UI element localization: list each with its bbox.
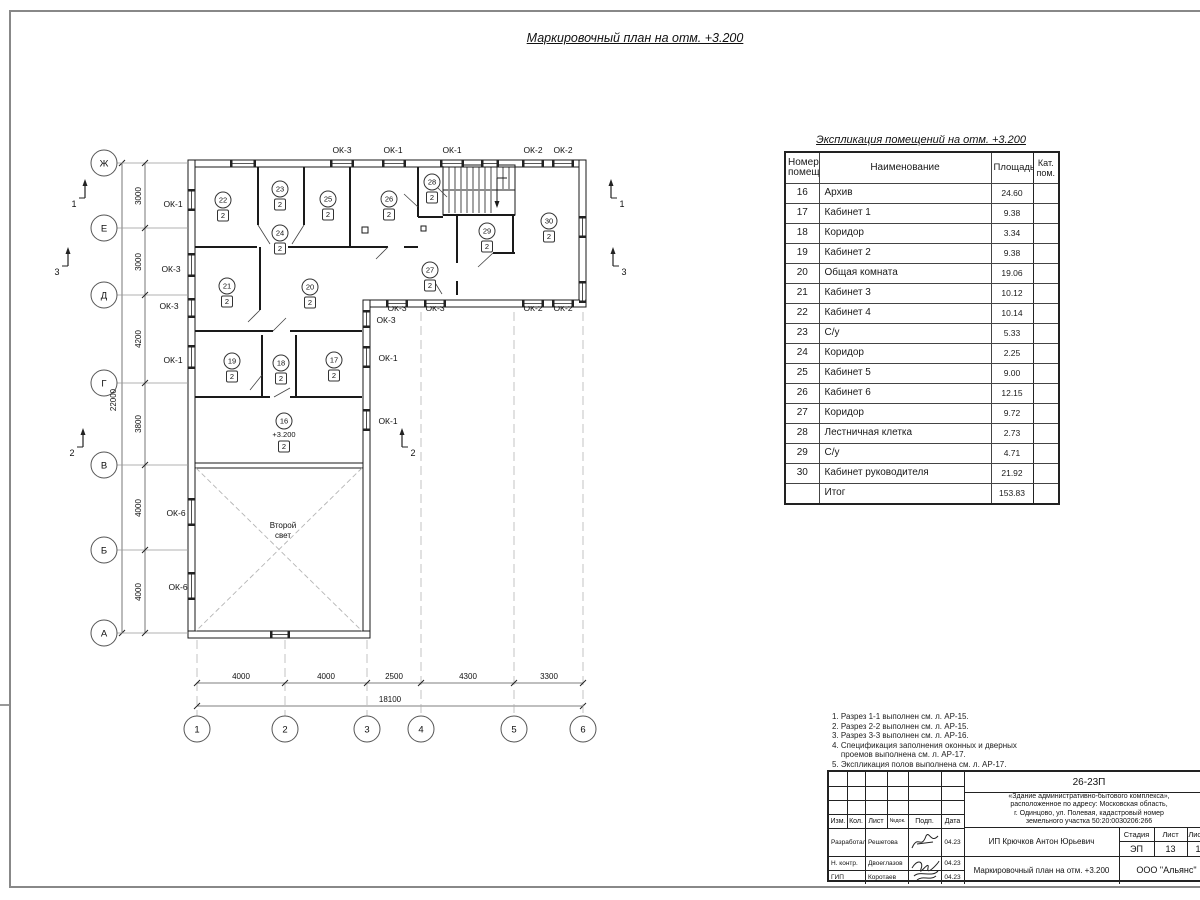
table-cell: 21 (785, 284, 819, 304)
stamp-sheet-title: Маркировочный план на отм. +3.200 (964, 856, 1119, 884)
table-cell (1033, 264, 1059, 284)
stamp-col-izm: Изм. (829, 814, 847, 828)
section-arrowhead (66, 247, 71, 254)
note-line: 5. Экспликация полов выполнена см. л. АР… (832, 760, 1017, 770)
stamp-name-developer: Решетова (866, 828, 910, 856)
room-category: 2 (278, 244, 282, 253)
table-cell: 9.72 (991, 404, 1033, 424)
note-line: 2. Разрез 2-2 выполнен см. л. АР-15. (832, 722, 1017, 732)
table-row: 17Кабинет 19.38 (785, 204, 1059, 224)
dimension-total-label: 18100 (379, 695, 402, 704)
room-number: 17 (330, 356, 338, 365)
section-arrowhead (609, 179, 614, 186)
table-row: 16Архив24.60 (785, 184, 1059, 204)
room-number: 18 (277, 359, 285, 368)
note-line: 1. Разрез 1-1 выполнен см. л. АР-15. (832, 712, 1017, 722)
grid-row-label: Б (101, 546, 107, 557)
table-cell: Кабинет руководителя (819, 464, 991, 484)
dimension-label: 3300 (540, 672, 558, 681)
window-label: ОК-6 (166, 508, 185, 518)
stamp-col-ndok: №док. (887, 814, 908, 828)
window-label: ОК-2 (523, 145, 542, 155)
table-row: 23С/у5.33 (785, 324, 1059, 344)
section-arrowhead (400, 428, 405, 435)
table-cell: 16 (785, 184, 819, 204)
beam-lines (195, 463, 363, 468)
sheet-frame-top (9, 10, 1200, 12)
table-cell: 23 (785, 324, 819, 344)
dimension-label: 4300 (459, 672, 477, 681)
table-cell: 9.38 (991, 244, 1033, 264)
grid-row-label: А (101, 629, 108, 640)
grid-row-label: Е (101, 224, 107, 235)
table-cell: 24.60 (991, 184, 1033, 204)
grid-row-label: Ж (100, 159, 109, 170)
table-row: 27Коридор9.72 (785, 404, 1059, 424)
col-header-cat: Кат. пом. (1033, 152, 1059, 184)
table-cell: 2.73 (991, 424, 1033, 444)
table-cell: 28 (785, 424, 819, 444)
window-label: ОК-1 (378, 416, 397, 426)
second-light-diagonals (196, 468, 362, 631)
room-category: 2 (279, 374, 283, 383)
sheet-frame-bottom (9, 886, 1200, 888)
room-number: 23 (276, 185, 284, 194)
section-number: 1 (71, 199, 76, 209)
table-cell: Лестничная клетка (819, 424, 991, 444)
section-arrowhead (83, 179, 88, 186)
note-line: 4. Спецификация заполнения оконных и две… (832, 741, 1017, 751)
second-light-label: Второй (270, 521, 296, 530)
room-category: 2 (230, 372, 234, 381)
room-category: 2 (225, 297, 229, 306)
table-row: Итог153.83 (785, 484, 1059, 505)
table-cell: 2.25 (991, 344, 1033, 364)
stamp-role-ncontrol: Н. контр. (829, 856, 867, 870)
dimension-label: 4200 (134, 330, 143, 348)
table-cell: 27 (785, 404, 819, 424)
table-cell: Кабинет 1 (819, 204, 991, 224)
stamp-col-data: Дата (941, 814, 964, 828)
window-label: ОК-3 (161, 264, 180, 274)
table-cell: 12.15 (991, 384, 1033, 404)
stamp-sheets-label: Листов (1187, 827, 1200, 841)
room-category: 2 (430, 193, 434, 202)
grid-row-label: Д (101, 291, 108, 302)
dimension-label: 4000 (232, 672, 250, 681)
room-number: 26 (385, 195, 393, 204)
window-label: ОК-1 (383, 145, 402, 155)
grid-row-label: Г (101, 379, 106, 390)
table-row: 18Коридор3.34 (785, 224, 1059, 244)
table-cell: Коридор (819, 224, 991, 244)
note-line: 3. Разрез 3-3 выполнен см. л. АР-16. (832, 731, 1017, 741)
table-cell: Общая комната (819, 264, 991, 284)
window-label: ОК-1 (442, 145, 461, 155)
table-cell: 5.33 (991, 324, 1033, 344)
room-number: 29 (483, 227, 491, 236)
room-category: 2 (332, 371, 336, 380)
table-cell: 19.06 (991, 264, 1033, 284)
floor-plan: ЖЕДГВБА123456300030004200380040004000220… (40, 130, 640, 750)
table-cell (1033, 384, 1059, 404)
table-cell: Кабинет 4 (819, 304, 991, 324)
dimension-total-label: 22000 (109, 388, 118, 411)
table-row: 22Кабинет 410.14 (785, 304, 1059, 324)
dimension-label: 4000 (134, 499, 143, 517)
window-label: ОК-1 (163, 199, 182, 209)
title-block: Изм. Кол. Лист №док. Подп. Дата Разработ… (827, 770, 1200, 882)
table-cell: Коридор (819, 344, 991, 364)
explication-title: Экспликация помещений на отм. +3.200 (784, 134, 1058, 146)
table-cell (1033, 204, 1059, 224)
section-number: 2 (69, 448, 74, 458)
section-number: 2 (410, 448, 415, 458)
explication-table: Экспликация помещений на отм. +3.200 Ном… (784, 134, 1058, 505)
table-cell (785, 484, 819, 505)
drawing-sheet: { "page": { "title": "Маркировочный план… (0, 0, 1200, 900)
table-cell: 30 (785, 464, 819, 484)
dimension-label: 2500 (385, 672, 403, 681)
room-number: 27 (426, 266, 434, 275)
table-row: 20Общая комната19.06 (785, 264, 1059, 284)
object-line: г. Одинцово, ул. Полевая, кадастровый но… (1014, 810, 1164, 818)
table-cell (1033, 304, 1059, 324)
room-number: 21 (223, 282, 231, 291)
stamp-date-developer: 04.23 (941, 828, 964, 856)
table-cell: 10.12 (991, 284, 1033, 304)
table-cell: 29 (785, 444, 819, 464)
table-cell: 10.14 (991, 304, 1033, 324)
object-line: земельного участка 50:20:0030206:266 (1026, 818, 1152, 826)
section-arrowhead (81, 428, 86, 435)
section-number: 3 (54, 267, 59, 277)
room-category: 2 (278, 200, 282, 209)
room-category: 2 (387, 210, 391, 219)
shaft-squares (362, 226, 426, 233)
stamp-col-podp: Подп. (908, 814, 941, 828)
signature-gip (908, 856, 942, 883)
table-row: 25Кабинет 59.00 (785, 364, 1059, 384)
room-level: +3.200 (272, 430, 295, 439)
col-header-area: Площадь (991, 152, 1033, 184)
stamp-name-ncontrol: Двоеглазов (866, 856, 910, 870)
table-row: 24Коридор2.25 (785, 344, 1059, 364)
dimension-label: 4000 (134, 583, 143, 601)
room-number: 16 (280, 417, 288, 426)
room-number: 20 (306, 283, 314, 292)
window-label: ОК-3 (376, 315, 395, 325)
table-cell (1033, 284, 1059, 304)
dimension-label: 4000 (317, 672, 335, 681)
room-number: 25 (324, 195, 332, 204)
notes-list: 1. Разрез 1-1 выполнен см. л. АР-15.2. Р… (832, 712, 1017, 770)
section-number: 1 (619, 199, 624, 209)
object-line: расположенное по адресу: Московская обла… (1010, 801, 1167, 809)
stamp-name-gip: Коротаев (866, 870, 910, 884)
note-line: проемов выполнена см. л. АР-17. (832, 750, 1017, 760)
window-label: ОК-6 (168, 582, 187, 592)
table-cell: 19 (785, 244, 819, 264)
table-cell (1033, 484, 1059, 505)
dimension-label: 3800 (134, 415, 143, 433)
grid-col-label: 2 (282, 725, 287, 736)
window-label: ОК-3 (332, 145, 351, 155)
table-cell: Кабинет 6 (819, 384, 991, 404)
table-cell: Кабинет 3 (819, 284, 991, 304)
grid-col-label: 3 (364, 725, 369, 736)
table-cell (1033, 444, 1059, 464)
stamp-object-description: «Здание административно-бытового комплек… (969, 793, 1200, 826)
table-row: 30Кабинет руководителя21.92 (785, 464, 1059, 484)
grid-col-label: 1 (194, 725, 199, 736)
grid-col-label: 6 (580, 725, 585, 736)
grid-row-label: В (101, 461, 107, 472)
window-label: ОК-3 (159, 301, 178, 311)
table-cell: 4.71 (991, 444, 1033, 464)
stamp-col-kol: Кол. (847, 814, 865, 828)
table-cell: Кабинет 5 (819, 364, 991, 384)
signature-developer (909, 830, 941, 854)
room-category: 2 (428, 281, 432, 290)
table-row: 29С/у4.71 (785, 444, 1059, 464)
table-cell: 18 (785, 224, 819, 244)
table-row: 19Кабинет 29.38 (785, 244, 1059, 264)
col-header-name: Наименование (819, 152, 991, 184)
table-cell (1033, 464, 1059, 484)
table-cell (1033, 364, 1059, 384)
room-category: 2 (282, 442, 286, 451)
stamp-role-gip: ГИП (829, 870, 867, 884)
table-cell: 3.34 (991, 224, 1033, 244)
grid-col-label: 4 (418, 725, 423, 736)
table-cell: 20 (785, 264, 819, 284)
table-cell: 21.92 (991, 464, 1033, 484)
sheet-frame-left (9, 10, 11, 888)
room-category: 2 (308, 298, 312, 307)
room-category: 2 (547, 232, 551, 241)
room-number: 22 (219, 196, 227, 205)
stamp-sheets-value: 17 (1187, 841, 1200, 856)
stamp-doc-number: 26-23П (964, 772, 1200, 792)
table-cell: Коридор (819, 404, 991, 424)
stamp-role-developer: Разработал (829, 828, 867, 856)
table-row: 26Кабинет 612.15 (785, 384, 1059, 404)
room-category: 2 (485, 242, 489, 251)
page-title: Маркировочный план на отм. +3.200 (430, 31, 840, 45)
table-cell: 9.00 (991, 364, 1033, 384)
dimension-label: 3000 (134, 187, 143, 205)
table-cell: 25 (785, 364, 819, 384)
stamp-client: ИП Крючков Антон Юрьевич (964, 827, 1119, 856)
table-header-row: Номер помещ. Наименование Площадь Кат. п… (785, 152, 1059, 184)
room-number: 30 (545, 217, 553, 226)
table-cell: Итог (819, 484, 991, 505)
table-cell (1033, 424, 1059, 444)
room-number: 24 (276, 229, 284, 238)
window-label: ОК-1 (163, 355, 182, 365)
table-cell: 153.83 (991, 484, 1033, 505)
table-cell (1033, 184, 1059, 204)
table-cell (1033, 404, 1059, 424)
stamp-company: ООО "Альянс" (1119, 856, 1200, 884)
stamp-col-list: Лист (865, 814, 887, 828)
table-cell: С/у (819, 324, 991, 344)
fold-mark (0, 704, 9, 706)
room-table: Номер помещ. Наименование Площадь Кат. п… (784, 151, 1060, 505)
stamp-sheet-value: 13 (1154, 841, 1187, 856)
table-cell: 17 (785, 204, 819, 224)
table-cell (1033, 324, 1059, 344)
table-cell (1033, 244, 1059, 264)
table-cell: 22 (785, 304, 819, 324)
room-category: 2 (221, 211, 225, 220)
table-cell: 26 (785, 384, 819, 404)
section-arrowhead (611, 247, 616, 254)
room-number: 28 (428, 178, 436, 187)
stamp-stage-value: ЭП (1119, 841, 1154, 856)
table-cell: 24 (785, 344, 819, 364)
room-number: 19 (228, 357, 236, 366)
table-cell (1033, 224, 1059, 244)
outer-walls (188, 160, 586, 638)
table-row: 28Лестничная клетка2.73 (785, 424, 1059, 444)
table-row: 21Кабинет 310.12 (785, 284, 1059, 304)
table-cell (1033, 344, 1059, 364)
section-number: 3 (621, 267, 626, 277)
stamp-sheet-label: Лист (1154, 827, 1187, 841)
staircase (443, 165, 515, 215)
dimension-label: 3000 (134, 253, 143, 271)
stamp-date-gip: 04.23 (941, 870, 964, 884)
window-label: ОК-1 (378, 353, 397, 363)
table-cell: 9.38 (991, 204, 1033, 224)
window-label: ОК-2 (553, 145, 572, 155)
stamp-date-ncontrol: 04.23 (941, 856, 964, 870)
table-cell: С/у (819, 444, 991, 464)
stamp-stage-label: Стадия (1119, 827, 1154, 841)
grid-col-label: 5 (511, 725, 516, 736)
second-light-label: свет (275, 531, 291, 540)
table-cell: Архив (819, 184, 991, 204)
room-category: 2 (326, 210, 330, 219)
table-cell: Кабинет 2 (819, 244, 991, 264)
col-header-num: Номер помещ. (785, 152, 819, 184)
